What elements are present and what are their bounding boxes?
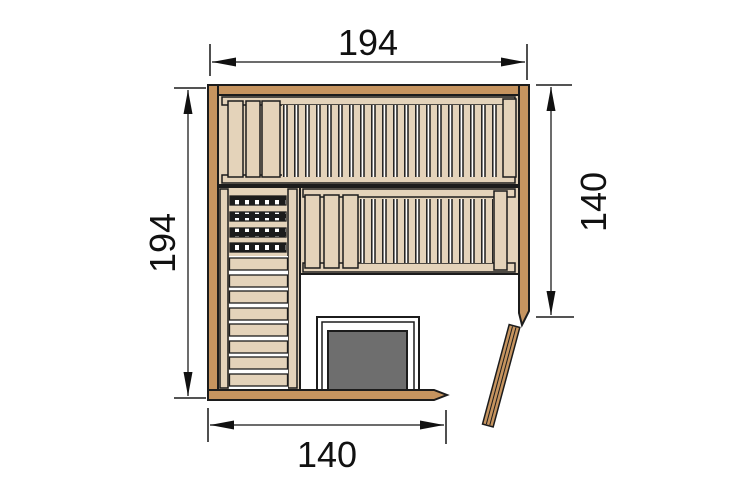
wall-top [208, 85, 529, 95]
arrowhead-right [501, 58, 525, 67]
arrowhead-down [184, 372, 193, 396]
wall-left [208, 85, 218, 400]
bench-left [218, 187, 300, 390]
dimension-top: 194 [210, 22, 527, 80]
arrowhead-left [212, 58, 236, 67]
dimension-right: 140 [536, 85, 614, 317]
arrowhead-up [184, 90, 193, 114]
wall-bottom [208, 390, 447, 400]
dimension-left: 194 [142, 88, 206, 398]
plan-drawing: 194 194 140 140 [0, 0, 750, 500]
bench-middle [299, 187, 519, 274]
arrowhead-left [210, 421, 234, 430]
dim-bottom-label: 140 [297, 434, 357, 475]
dim-right-label: 140 [573, 172, 614, 232]
headrest-top-bench [228, 101, 280, 177]
heater [317, 317, 419, 391]
wall-right [519, 85, 529, 325]
arrowhead-down [547, 291, 556, 315]
door-panel [483, 325, 520, 427]
bench-top [218, 95, 519, 185]
headrest-middle-bench [305, 195, 358, 268]
heater-body [328, 331, 407, 391]
dim-left-label: 194 [142, 213, 183, 273]
dimension-bottom: 140 [208, 408, 446, 475]
arrowhead-up [547, 87, 556, 111]
dim-top-label: 194 [338, 22, 398, 63]
sauna-floor-plan: 194 194 140 140 [0, 0, 750, 500]
arrowhead-right [420, 421, 444, 430]
